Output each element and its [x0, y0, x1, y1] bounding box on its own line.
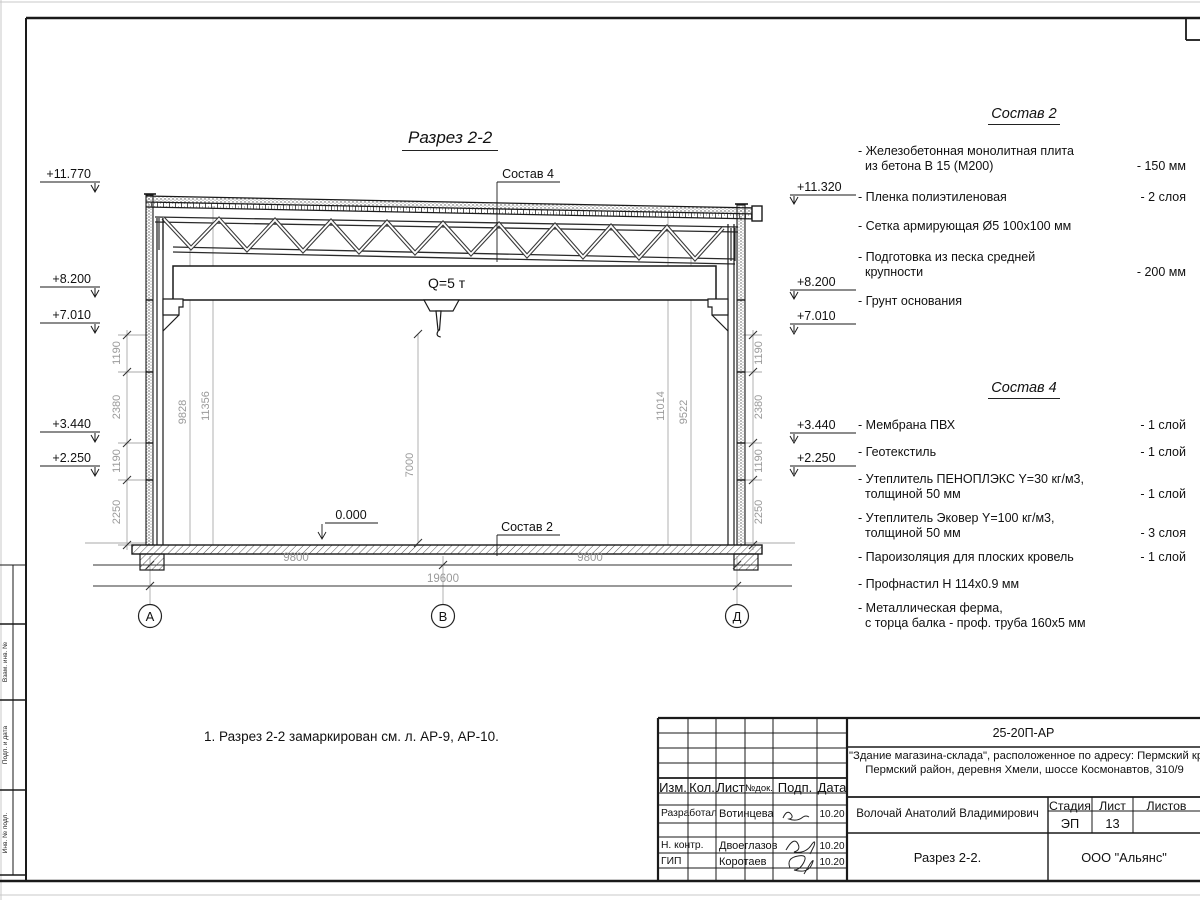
- svg-text:1190: 1190: [111, 341, 123, 365]
- sostav4-list: Состав 4 - Мембрана ПВХ- 1 слой - Геотек…: [858, 380, 1190, 631]
- svg-text:2380: 2380: [111, 395, 123, 419]
- walls: [144, 194, 748, 545]
- drawing-note: 1. Разрез 2-2 замаркирован см. л. АР-9, …: [204, 729, 499, 744]
- col-data: Дата: [817, 780, 847, 795]
- svg-text:1190: 1190: [111, 449, 123, 473]
- row2-role: Н. контр.: [661, 840, 704, 851]
- svg-text:1190: 1190: [753, 341, 765, 365]
- svg-text:Д: Д: [733, 609, 742, 624]
- floor: [132, 545, 762, 570]
- chief-name: Волочай Анатолий Владимирович: [847, 808, 1048, 820]
- svg-text:11014: 11014: [655, 391, 667, 421]
- row2-name: Двоеглазов: [719, 840, 777, 852]
- margin-field-3: Инв. № подл.: [2, 813, 9, 854]
- right-wall-panel: [737, 205, 745, 545]
- col-izm: Изм.: [658, 780, 688, 795]
- sostav4-item-6: - Профнастил Н 114х0.9 мм: [858, 577, 1190, 592]
- row3-name: Коротаев: [719, 856, 767, 868]
- drawing-sheet: { "drawing": { "title": "Разрез 2-2", "c…: [0, 0, 1200, 900]
- svg-text:+8.200: +8.200: [797, 275, 836, 289]
- svg-text:А: А: [146, 609, 155, 624]
- svg-text:+11.320: +11.320: [797, 180, 842, 194]
- project-description-line2: Пермский район, деревня Хмели, шоссе Кос…: [849, 764, 1200, 776]
- svg-text:+8.200: +8.200: [52, 272, 91, 286]
- elevation-labels-left: +11.770 +8.200 +7.010 +3.440 +2.250: [46, 167, 91, 465]
- left-wall-panel: [146, 195, 153, 545]
- sostav2-item-1: - Железобетонная монолитная плитаиз бето…: [858, 144, 1190, 174]
- signature-korotaev: [789, 856, 813, 874]
- interior-dims: 9828 11356 7000 11014 9522: [177, 391, 690, 477]
- left-margin-labels: Взам. инв. № Подп. и дата Инв. № подл.: [2, 642, 9, 853]
- margin-field-1: Взам. инв. №: [2, 642, 9, 682]
- sostav2-title: Состав 2: [858, 106, 1190, 122]
- zero-level-label: 0.000: [335, 508, 366, 522]
- roof-fascia-right: [752, 206, 762, 221]
- row2-date: 10.20: [817, 841, 847, 852]
- svg-text:2250: 2250: [111, 500, 123, 524]
- sostav4-title: Состав 4: [858, 380, 1190, 396]
- sostav4-item-2: - Геотекстиль- 1 слой: [858, 445, 1190, 460]
- sostav4-callout: Состав 4: [502, 167, 554, 181]
- svg-text:9800: 9800: [283, 552, 309, 564]
- foundation-right: [734, 554, 758, 570]
- stage-value: ЭП: [1048, 816, 1092, 831]
- drawing-view-title: Разрез 2-2: [402, 128, 498, 151]
- sheet-label: Лист: [1092, 799, 1133, 813]
- truss-bottom-chord: [173, 247, 735, 264]
- grid-axis-labels: А В Д: [146, 609, 742, 624]
- sostav4-item-5: - Пароизоляция для плоских кровель- 1 сл…: [858, 550, 1190, 565]
- sostav2-item-2: - Пленка полиэтиленовая- 2 слоя: [858, 190, 1190, 205]
- sostav4-item-3: - Утеплитель ПЕНОПЛЭКС Y=30 кг/м3,толщин…: [858, 472, 1190, 502]
- wall-dims-left: 1190 2380 1190 2250: [111, 341, 123, 524]
- drawing-name: Разрез 2-2.: [847, 850, 1048, 865]
- svg-text:В: В: [439, 609, 448, 624]
- svg-text:+2.250: +2.250: [52, 451, 91, 465]
- signatures: [783, 812, 815, 874]
- svg-text:19600: 19600: [427, 573, 459, 585]
- col-podp: Подп.: [773, 780, 817, 795]
- svg-text:+3.440: +3.440: [52, 417, 91, 431]
- company-name: ООО "Альянс": [1048, 850, 1200, 865]
- sostav2-callout: Состав 2: [501, 520, 553, 534]
- elevation-labels-right: +11.320 +8.200 +7.010 +3.440 +2.250: [797, 180, 842, 465]
- svg-text:1190: 1190: [753, 449, 765, 473]
- sostav2-item-5: - Грунт основания: [858, 294, 1190, 309]
- sostav4-item-7: - Металлическая ферма,с торца балка - пр…: [858, 601, 1190, 631]
- row1-name: Вотинцева: [719, 808, 774, 820]
- svg-text:9800: 9800: [577, 552, 603, 564]
- sostav4-item-4: - Утеплитель Эковер Y=100 кг/м3,толщиной…: [858, 511, 1190, 541]
- roof-truss: [155, 217, 738, 264]
- row3-role: ГИП: [661, 856, 681, 867]
- svg-text:+7.010: +7.010: [52, 308, 91, 322]
- signature-dvoeglazov: [786, 841, 815, 854]
- crane-capacity-label: Q=5 т: [428, 275, 466, 291]
- right-column: [728, 224, 734, 545]
- svg-text:+11.770: +11.770: [46, 167, 91, 181]
- roof-slab: [146, 196, 762, 221]
- svg-text:9828: 9828: [177, 400, 189, 424]
- row1-date: 10.20: [817, 809, 847, 820]
- callout-leaders: [318, 182, 560, 556]
- margin-field-2: Подп. и дата: [2, 725, 9, 764]
- sostav2-item-4: - Подготовка из песка среднейкрупности -…: [858, 250, 1190, 280]
- foundation-left: [140, 554, 164, 570]
- svg-text:+2.250: +2.250: [797, 451, 836, 465]
- col-kol: Кол.: [688, 780, 716, 795]
- signature-votintseva: [783, 812, 809, 820]
- stage-label: Стадия: [1048, 799, 1092, 813]
- svg-text:2250: 2250: [753, 500, 765, 524]
- sheets-label: Листов: [1133, 799, 1200, 813]
- sostav4-item-1: - Мембрана ПВХ- 1 слой: [858, 418, 1190, 433]
- wall-dims-right: 1190 2380 1190 2250: [753, 341, 765, 524]
- crane-hook-assembly: [424, 300, 459, 337]
- wall-panel-joints: [146, 300, 745, 480]
- svg-text:+3.440: +3.440: [797, 418, 836, 432]
- project-description-line1: "Здание магазина-склада", расположенное …: [849, 750, 1200, 762]
- col-list: Лист: [716, 780, 745, 795]
- row3-date: 10.20: [817, 857, 847, 868]
- svg-text:11356: 11356: [200, 391, 212, 421]
- svg-text:+7.010: +7.010: [797, 309, 836, 323]
- svg-text:9522: 9522: [678, 400, 690, 424]
- row1-role: Разработал: [661, 808, 717, 819]
- sheet-value: 13: [1092, 816, 1133, 831]
- sostav2-item-3: - Сетка армирующая Ø5 100х100 мм: [858, 219, 1190, 234]
- svg-text:7000: 7000: [404, 453, 416, 477]
- col-ndok: №док.: [745, 783, 773, 794]
- svg-text:2380: 2380: [753, 395, 765, 419]
- left-column: [157, 218, 163, 545]
- sostav2-list: Состав 2 - Железобетонная монолитная пли…: [858, 106, 1190, 309]
- doc-number: 25-20П-АР: [847, 726, 1200, 740]
